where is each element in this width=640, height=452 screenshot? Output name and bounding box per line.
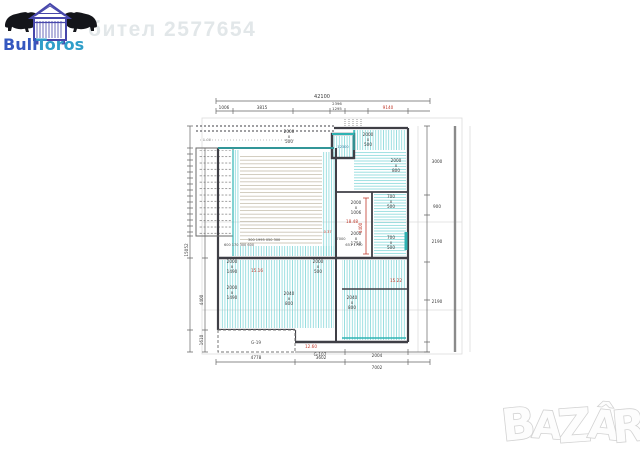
area-label: G-19 bbox=[251, 340, 261, 345]
dim-label: 4400 bbox=[199, 294, 204, 305]
area-label: 651 1700 bbox=[345, 243, 363, 247]
hatch-regions bbox=[198, 130, 406, 340]
red-label: 4400 bbox=[358, 222, 363, 233]
dim-label-total: 42100 bbox=[314, 94, 330, 100]
red-dimension-line bbox=[363, 198, 369, 254]
red-label: -0.37 bbox=[322, 230, 331, 234]
dim-label: 1295 bbox=[332, 106, 342, 111]
window-size-label: 500 bbox=[314, 269, 322, 274]
window-size-label: 1006 bbox=[351, 210, 362, 215]
door-tick-cluster bbox=[345, 119, 361, 127]
note-row: 300 1995 050 300 bbox=[248, 238, 280, 242]
dim-label: 4778 bbox=[251, 355, 262, 360]
area-label: 12300 bbox=[337, 145, 349, 149]
area-label: G-107 bbox=[314, 352, 327, 357]
window-size-label: 800 bbox=[392, 168, 400, 173]
dim-chain-top bbox=[216, 108, 430, 114]
area-label: 1-00 bbox=[203, 138, 212, 142]
bazar-watermark: B A Z Â R bbox=[500, 388, 640, 452]
red-label: 12.60 bbox=[305, 344, 317, 349]
window-size-label: 800 bbox=[285, 301, 293, 306]
dim-label: 900 bbox=[433, 204, 441, 209]
stair-block-steps bbox=[198, 150, 232, 234]
dim-chain-left bbox=[187, 126, 193, 352]
dim-label-red: 9140 bbox=[383, 105, 394, 110]
listing-image: бител 2577654 bbox=[0, 0, 640, 452]
window-size-label: 500 bbox=[387, 204, 395, 209]
dim-label: 15052 bbox=[184, 243, 189, 257]
dim-label: 1006 bbox=[219, 105, 230, 110]
window-size-label: 500 bbox=[387, 245, 395, 250]
hatch-mid-strip bbox=[322, 152, 336, 256]
dim-label: 1610 bbox=[199, 334, 204, 345]
red-label: 15.22 bbox=[390, 278, 402, 283]
note-row: 600 170 300 600 bbox=[224, 243, 254, 247]
window-size-label: 800 bbox=[348, 305, 356, 310]
wall-top-dashed bbox=[196, 126, 334, 131]
dim-label: 3815 bbox=[257, 105, 268, 110]
dim-label: 2190 bbox=[432, 239, 443, 244]
bazar-letter: R bbox=[610, 400, 640, 452]
hatch-under-deck bbox=[240, 246, 334, 256]
red-label: 18.48 bbox=[346, 219, 358, 224]
hatch-left-strip bbox=[233, 150, 240, 256]
floor-plan-drawing: 42100 1006 3815 2396 1295 9140 4778 3602… bbox=[0, 0, 640, 452]
deck-room-floor bbox=[240, 154, 322, 246]
dim-chain-right bbox=[424, 126, 430, 352]
dim-label: 3000 bbox=[432, 159, 443, 164]
dim-label: 2190 bbox=[432, 299, 443, 304]
window-size-label: 500 bbox=[364, 142, 372, 147]
area-label: 7000 bbox=[336, 237, 346, 241]
red-label: 15.16 bbox=[251, 268, 263, 273]
window-size-label: 500 bbox=[285, 139, 293, 144]
window-size-label: 1490 bbox=[227, 269, 238, 274]
dim-label: 2004 bbox=[372, 353, 383, 358]
dim-label: 7002 bbox=[372, 365, 383, 370]
window-size-label: 1490 bbox=[227, 295, 238, 300]
bazar-watermark-graphic: B A Z Â R bbox=[500, 388, 640, 452]
